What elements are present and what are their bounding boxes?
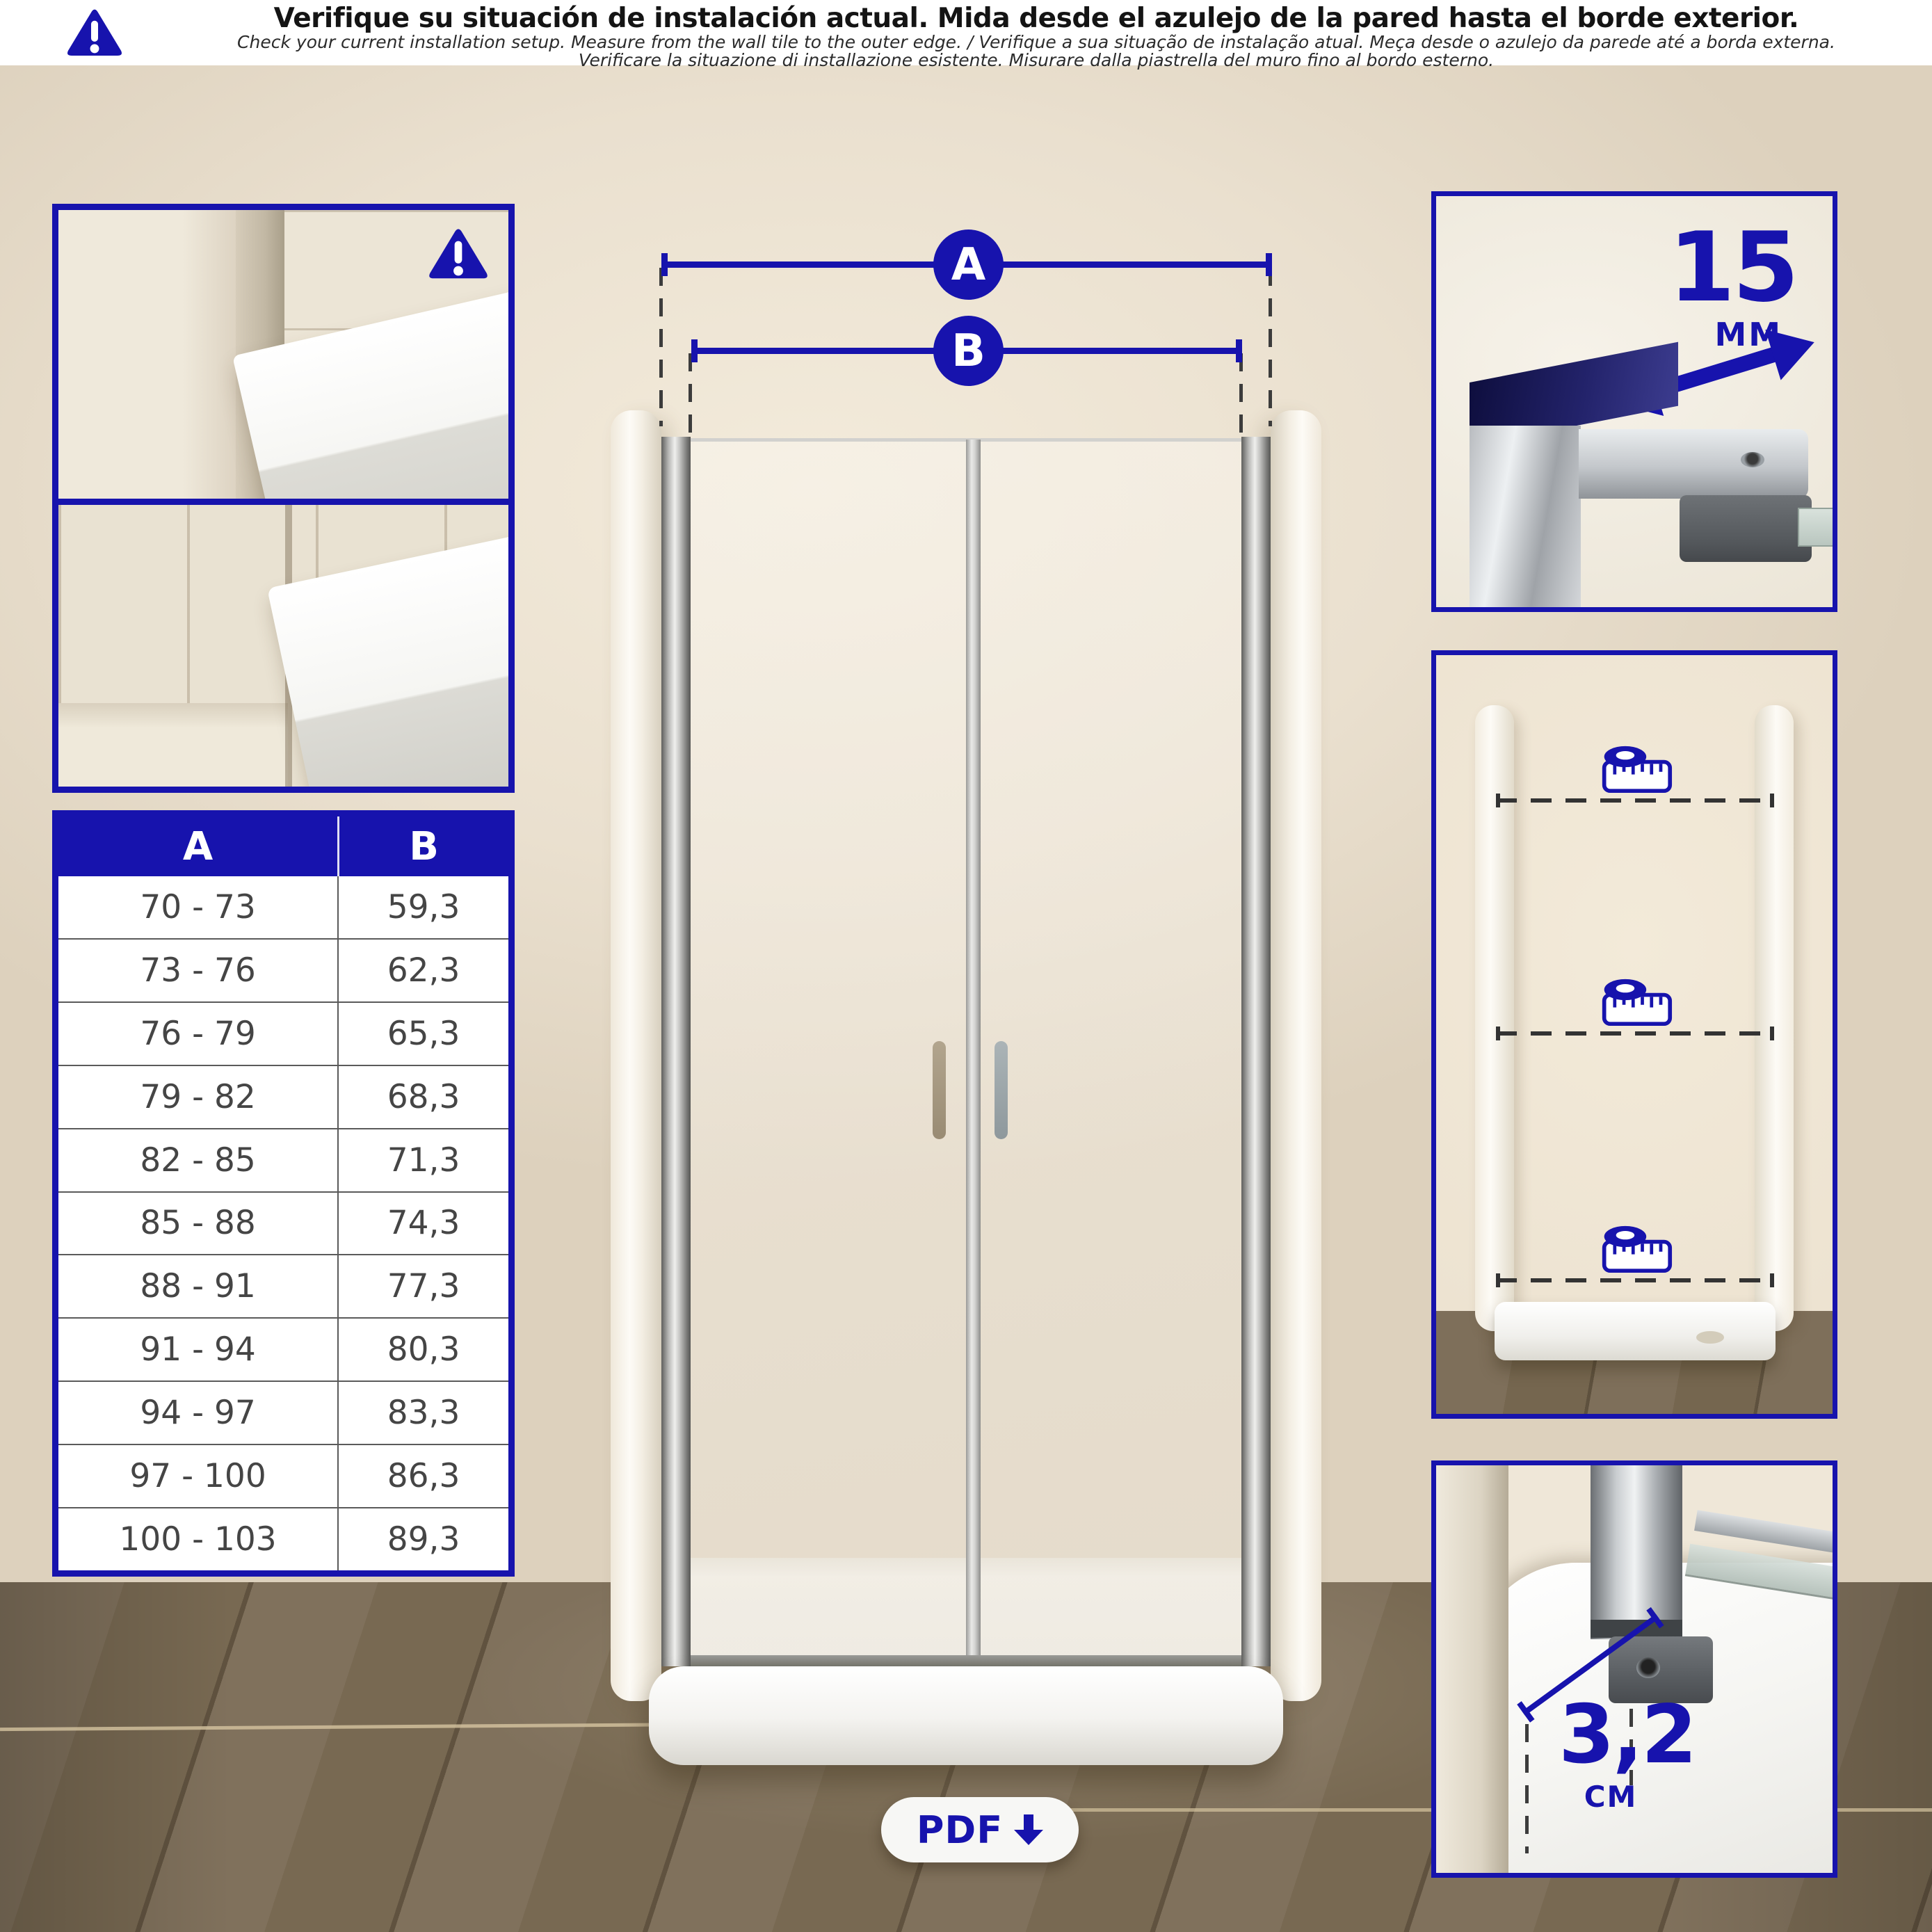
door-center-seam [966, 440, 981, 1657]
page-subtitle-it: Verificare la situazione di installazion… [146, 51, 1926, 70]
cell-a: 88 - 91 [58, 1255, 337, 1317]
detail-photo-tray-corner [58, 505, 508, 787]
table-row: 79 - 82 68,3 [58, 1065, 508, 1128]
dashed-guide-line [689, 353, 692, 440]
chrome-wall-profile-left [661, 437, 691, 1666]
measure-heights-panel [1431, 650, 1837, 1419]
door-handle-left [933, 1041, 946, 1139]
pdf-download-button[interactable]: PDF [881, 1797, 1079, 1862]
tape-measure-icon [1600, 744, 1673, 794]
drain [1696, 1331, 1724, 1344]
cell-a: 91 - 94 [58, 1319, 337, 1380]
wall-strip [1436, 1465, 1508, 1878]
table-row: 94 - 97 83,3 [58, 1380, 508, 1444]
adjustment-value: 15 [1668, 211, 1796, 323]
dashed-measure-line [1496, 798, 1774, 803]
installation-detail-card [52, 204, 515, 793]
warning-icon [426, 225, 490, 282]
cell-a: 70 - 73 [58, 876, 337, 938]
screw-icon [1741, 452, 1764, 467]
profile-offset-panel: 3,2 CM [1431, 1460, 1837, 1878]
tape-measure-icon [1600, 1224, 1673, 1274]
tape-measure-icon [1600, 977, 1673, 1027]
download-icon [1014, 1813, 1043, 1846]
table-row: 97 - 100 86,3 [58, 1444, 508, 1507]
glass-clamp [1680, 495, 1812, 562]
door-handle-right [995, 1041, 1008, 1139]
adjustment-panel: 15 MM [1431, 191, 1837, 612]
cell-b: 71,3 [337, 1129, 508, 1191]
cell-a: 82 - 85 [58, 1129, 337, 1191]
cell-b: 68,3 [337, 1066, 508, 1128]
warning-icon [65, 5, 124, 61]
door-bottom-seal [691, 1655, 1241, 1666]
size-table-body: 70 - 73 59,3 73 - 76 62,3 76 - 79 65,3 7… [58, 876, 508, 1570]
table-row: 85 - 88 74,3 [58, 1191, 508, 1255]
size-table-header: A B [58, 816, 508, 876]
cell-a: 73 - 76 [58, 940, 337, 1001]
cell-b: 59,3 [337, 876, 508, 938]
column-header-b: B [337, 816, 508, 876]
cell-b: 86,3 [337, 1445, 508, 1507]
cell-b: 83,3 [337, 1382, 508, 1444]
offset-value: 3,2 [1559, 1688, 1663, 1782]
column-header-a: A [58, 816, 337, 876]
cell-a: 85 - 88 [58, 1193, 337, 1255]
profile-column [1470, 426, 1581, 612]
cell-a: 100 - 103 [58, 1508, 337, 1570]
table-row: 73 - 76 62,3 [58, 938, 508, 1001]
infographic-page: Verifique su situación de instalación ac… [0, 0, 1932, 1932]
cell-a: 76 - 79 [58, 1003, 337, 1065]
cell-b: 89,3 [337, 1508, 508, 1570]
cell-a: 97 - 100 [58, 1445, 337, 1507]
profile-arm [1579, 429, 1808, 499]
shower-tray [1495, 1302, 1776, 1360]
cell-a: 94 - 97 [58, 1382, 337, 1444]
size-table: A B 70 - 73 59,3 73 - 76 62,3 76 - 79 65… [52, 810, 515, 1577]
chrome-profile [1591, 1465, 1682, 1639]
cell-b: 74,3 [337, 1193, 508, 1255]
cell-b: 65,3 [337, 1003, 508, 1065]
header-text: Verifique su situación de instalación ac… [146, 4, 1926, 70]
dashed-guide-line [1269, 268, 1272, 426]
measure-label-b: B [933, 316, 1004, 386]
table-row: 76 - 79 65,3 [58, 1001, 508, 1065]
dashed-guide-line [1525, 1724, 1529, 1853]
header-bar: Verifique su situación de instalación ac… [0, 0, 1932, 65]
wall-pillar-left [611, 410, 661, 1701]
glass-edge [1798, 508, 1837, 547]
table-row: 82 - 85 71,3 [58, 1128, 508, 1191]
table-row: 88 - 91 77,3 [58, 1254, 508, 1317]
dashed-measure-line [1496, 1278, 1774, 1282]
table-row: 91 - 94 80,3 [58, 1317, 508, 1380]
pdf-button-label: PDF [917, 1808, 1003, 1852]
cell-b: 77,3 [337, 1255, 508, 1317]
floor-corner [58, 703, 288, 787]
shower-tray-front [649, 1666, 1283, 1765]
page-title: Verifique su situación de instalación ac… [146, 4, 1926, 33]
measure-label-a: A [933, 230, 1004, 300]
cell-b: 62,3 [337, 940, 508, 1001]
cell-b: 80,3 [337, 1319, 508, 1380]
cell-a: 79 - 82 [58, 1066, 337, 1128]
plain-wall [58, 210, 236, 499]
dashed-guide-line [659, 268, 663, 426]
screw-icon [1636, 1657, 1660, 1678]
dashed-guide-line [1239, 353, 1243, 440]
wall-pillar-right [1271, 410, 1321, 1701]
table-row: 70 - 73 59,3 [58, 876, 508, 938]
table-row: 100 - 103 89,3 [58, 1507, 508, 1570]
dashed-measure-line [1496, 1031, 1774, 1036]
page-subtitle-en-pt: Check your current installation setup. M… [146, 33, 1926, 51]
offset-unit: CM [1559, 1780, 1663, 1814]
chrome-wall-profile-right [1241, 437, 1271, 1666]
detail-photo-tray-edge [58, 210, 508, 505]
